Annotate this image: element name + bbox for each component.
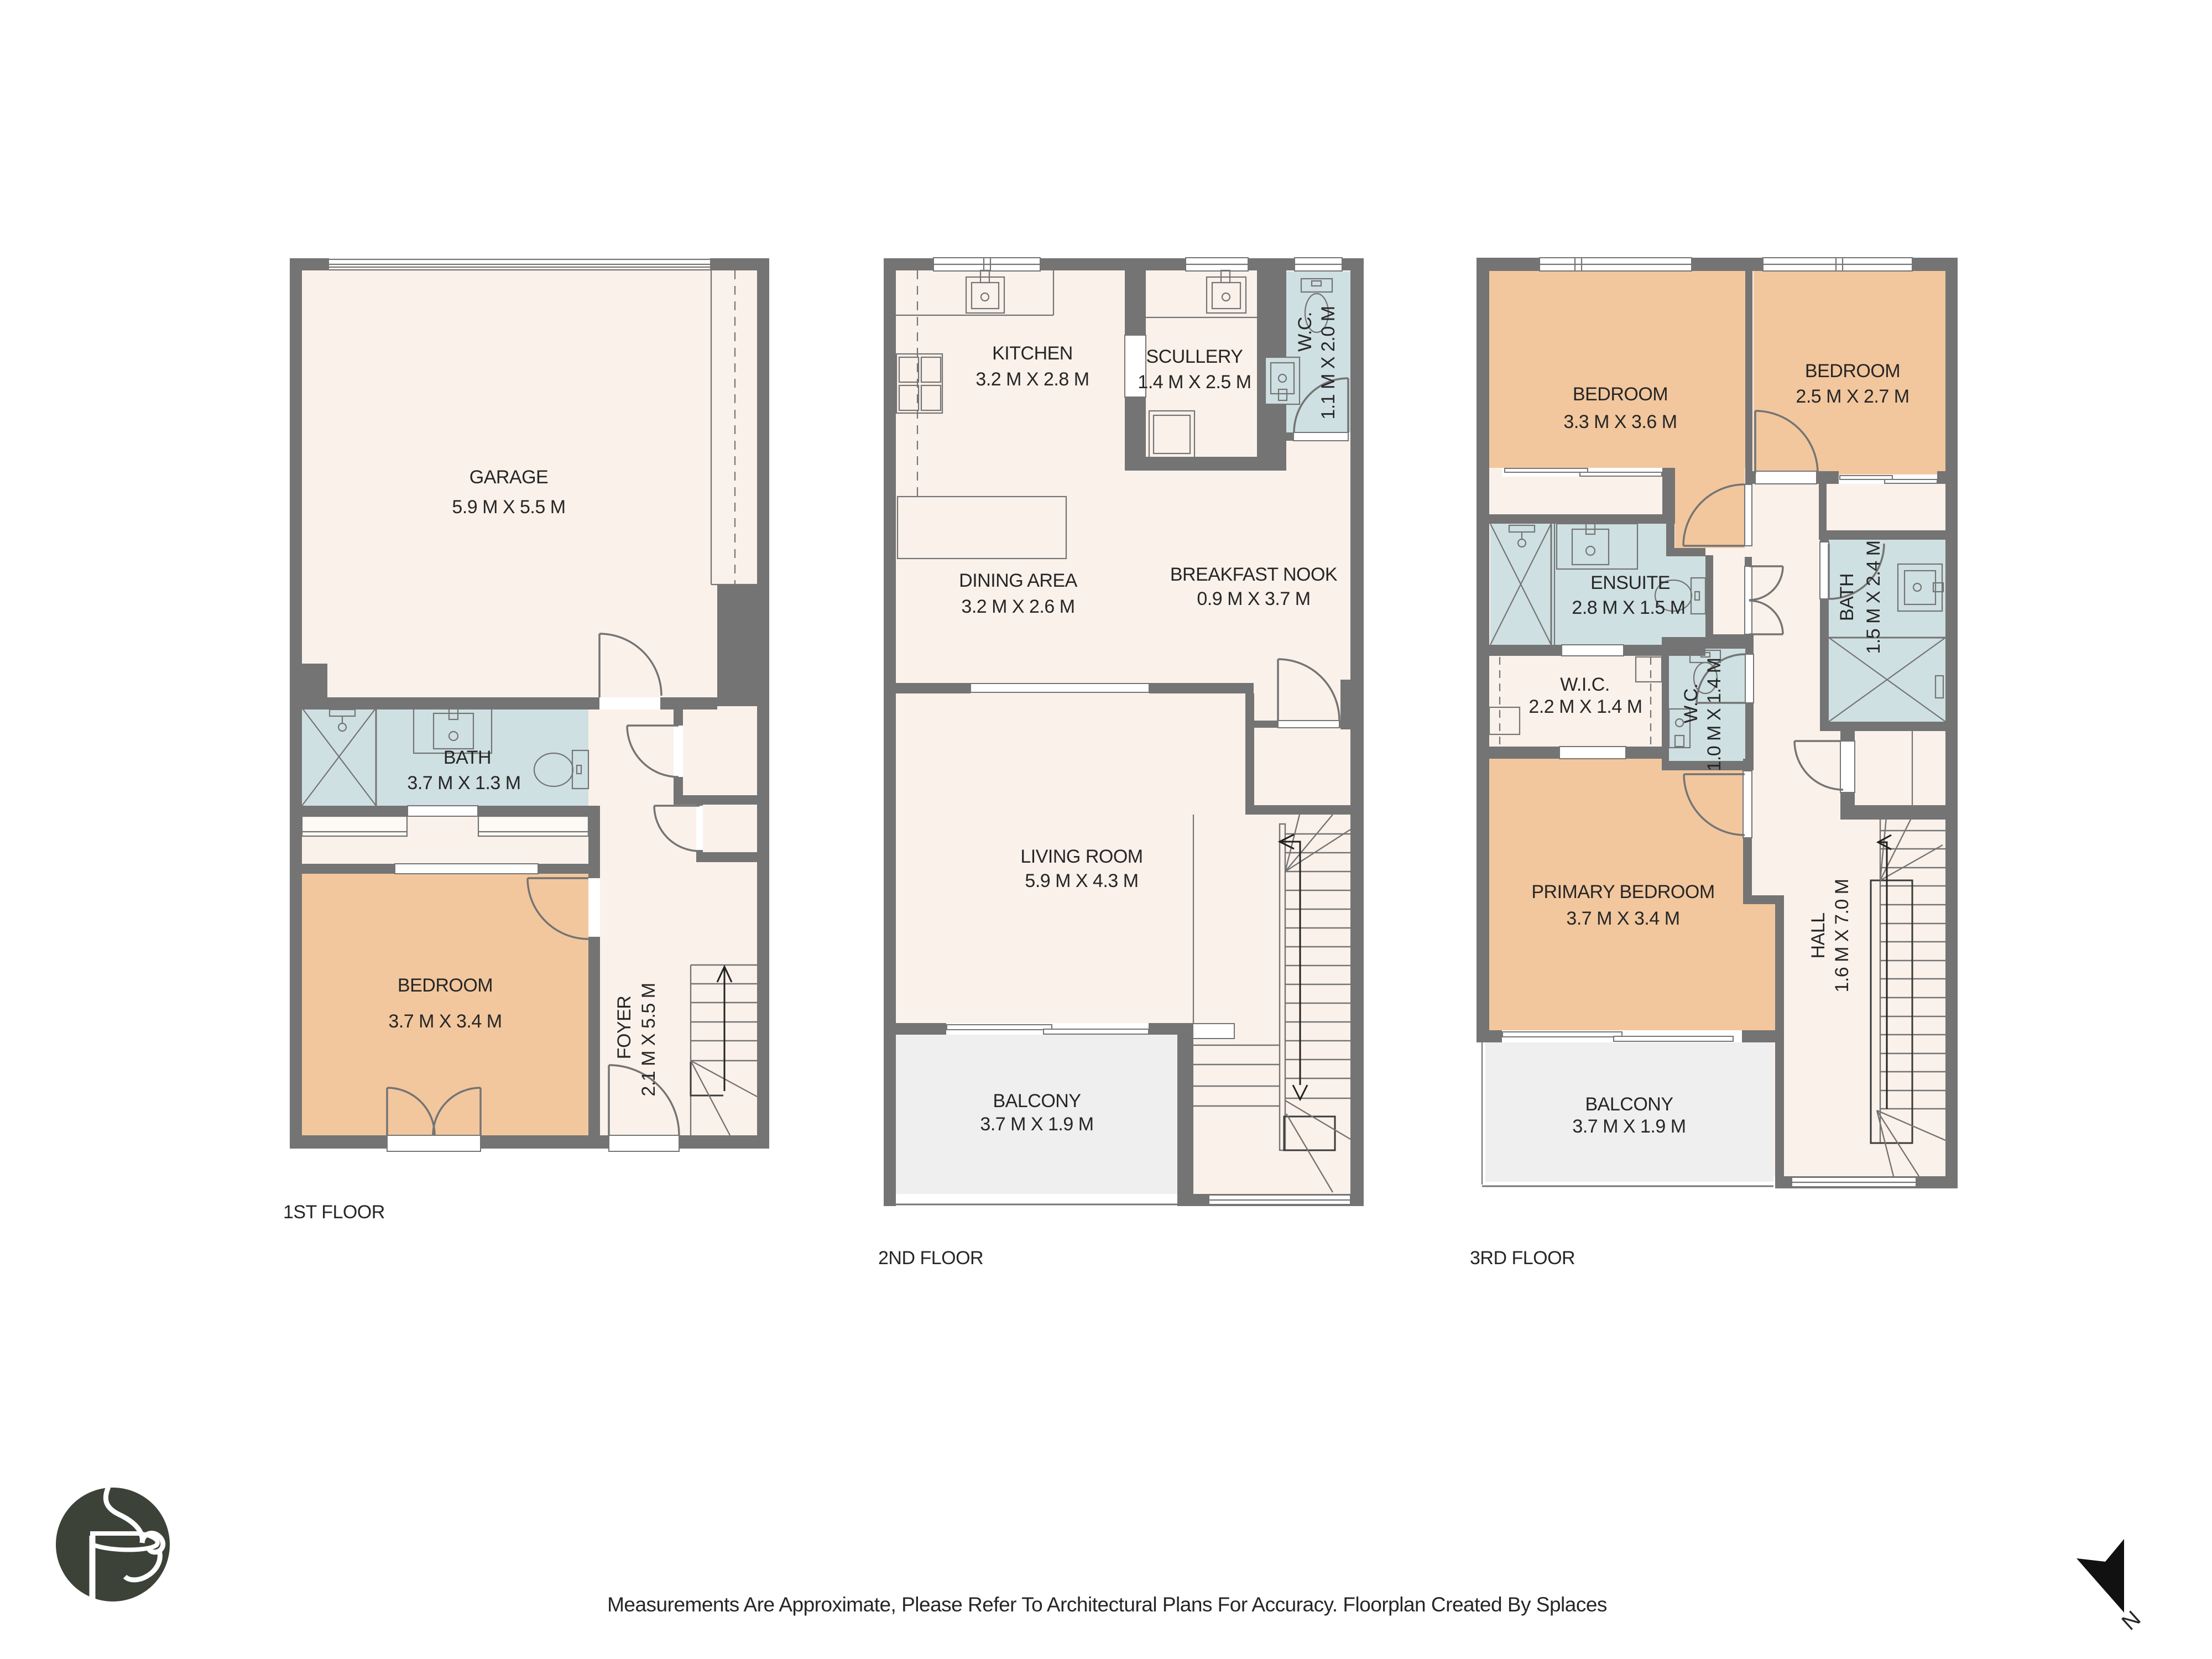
svg-text:LIVING ROOM: LIVING ROOM — [1020, 846, 1142, 867]
svg-text:DINING AREA: DINING AREA — [959, 570, 1077, 591]
svg-text:5.9 M X 5.5 M: 5.9 M X 5.5 M — [452, 497, 565, 518]
svg-text:3RD FLOOR: 3RD FLOOR — [1470, 1248, 1575, 1269]
svg-text:0.9 M X 3.7 M: 0.9 M X 3.7 M — [1197, 588, 1310, 609]
svg-text:BEDROOM: BEDROOM — [1805, 361, 1900, 382]
svg-text:3.2 M X 2.6 M: 3.2 M X 2.6 M — [961, 596, 1074, 617]
svg-text:SCULLERY: SCULLERY — [1146, 346, 1243, 367]
svg-text:W.C.: W.C. — [1681, 684, 1702, 723]
svg-text:5.9 M X 4.3 M: 5.9 M X 4.3 M — [1025, 870, 1138, 891]
svg-text:BATH: BATH — [1837, 573, 1858, 621]
svg-text:3.7 M X 3.4 M: 3.7 M X 3.4 M — [388, 1011, 502, 1032]
svg-text:GARAGE: GARAGE — [469, 467, 548, 488]
svg-text:1ST FLOOR: 1ST FLOOR — [283, 1202, 385, 1223]
svg-text:Measurements Are Approximate,: Measurements Are Approximate, Please Ref… — [607, 1593, 1607, 1616]
svg-text:BALCONY: BALCONY — [993, 1091, 1081, 1112]
svg-text:FOYER: FOYER — [614, 996, 635, 1060]
svg-text:3.7 M X 1.9 M: 3.7 M X 1.9 M — [980, 1114, 1093, 1135]
svg-text:3.2 M X 2.8 M: 3.2 M X 2.8 M — [975, 369, 1089, 390]
svg-text:1.0 M X 1.4 M: 1.0 M X 1.4 M — [1704, 658, 1725, 771]
svg-text:BEDROOM: BEDROOM — [398, 975, 493, 996]
svg-text:W.I.C.: W.I.C. — [1560, 674, 1610, 695]
svg-text:PRIMARY BEDROOM: PRIMARY BEDROOM — [1531, 881, 1714, 902]
svg-text:BATH: BATH — [444, 747, 491, 768]
svg-text:2.2 M X 1.4 M: 2.2 M X 1.4 M — [1528, 696, 1642, 717]
svg-text:2.1 M X 5.5 M: 2.1 M X 5.5 M — [638, 983, 659, 1096]
svg-text:HALL: HALL — [1808, 912, 1829, 958]
svg-text:2.5 M X 2.7 M: 2.5 M X 2.7 M — [1796, 386, 1909, 407]
svg-text:W.C.: W.C. — [1295, 312, 1316, 352]
svg-text:2ND FLOOR: 2ND FLOOR — [878, 1248, 983, 1269]
svg-text:3.7 M X 3.4 M: 3.7 M X 3.4 M — [1566, 908, 1679, 929]
svg-text:ENSUITE: ENSUITE — [1590, 572, 1670, 593]
svg-text:BEDROOM: BEDROOM — [1573, 384, 1668, 405]
svg-text:1.4 M X 2.5 M: 1.4 M X 2.5 M — [1138, 372, 1251, 393]
svg-text:2.8 M X 1.5 M: 2.8 M X 1.5 M — [1572, 597, 1685, 618]
svg-text:1.6 M X 7.0 M: 1.6 M X 7.0 M — [1832, 879, 1853, 992]
svg-text:BALCONY: BALCONY — [1585, 1094, 1673, 1115]
svg-text:3.3 M X 3.6 M: 3.3 M X 3.6 M — [1563, 411, 1677, 432]
svg-text:3.7 M X 1.3 M: 3.7 M X 1.3 M — [407, 773, 520, 794]
svg-text:1.5 M X 2.4 M: 1.5 M X 2.4 M — [1863, 540, 1884, 654]
svg-text:KITCHEN: KITCHEN — [992, 343, 1073, 364]
svg-text:3.7 M X 1.9 M: 3.7 M X 1.9 M — [1572, 1116, 1686, 1137]
svg-text:1.1 M X 2.0 M: 1.1 M X 2.0 M — [1318, 306, 1339, 419]
svg-text:BREAKFAST NOOK: BREAKFAST NOOK — [1170, 564, 1338, 585]
